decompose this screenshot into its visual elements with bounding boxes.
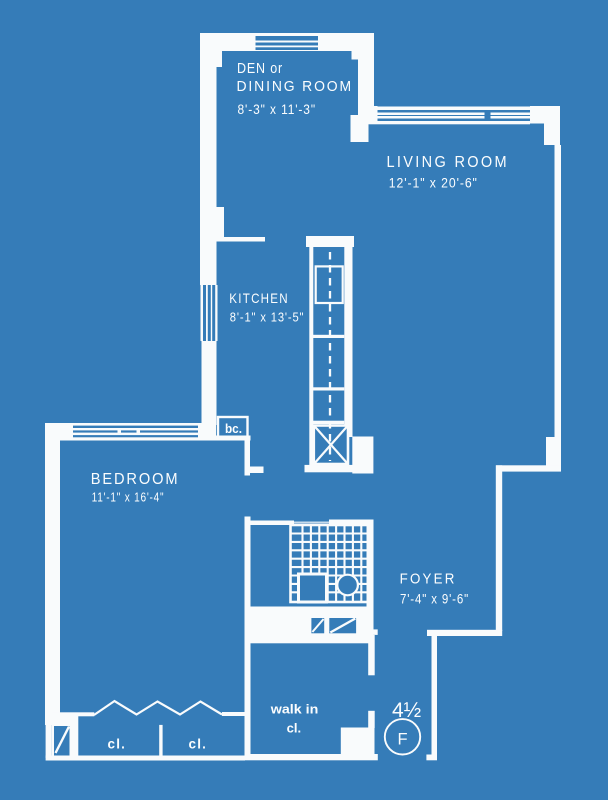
svg-text:cl.: cl. [287, 721, 302, 736]
svg-text:cl.: cl. [108, 737, 127, 752]
svg-text:FOYER: FOYER [400, 571, 457, 588]
svg-text:walk in: walk in [270, 702, 319, 717]
svg-text:8'-1" x 13'-5": 8'-1" x 13'-5" [230, 310, 305, 325]
svg-text:bc.: bc. [225, 421, 242, 436]
svg-text:8'-3" x 11'-3": 8'-3" x 11'-3" [238, 102, 317, 117]
svg-text:DINING ROOM: DINING ROOM [237, 78, 354, 95]
svg-text:DEN or: DEN or [237, 60, 283, 77]
svg-text:7'-4" x 9'-6": 7'-4" x 9'-6" [400, 592, 469, 607]
svg-text:12'-1" x 20'-6": 12'-1" x 20'-6" [389, 176, 478, 191]
svg-text:LIVING ROOM: LIVING ROOM [387, 154, 510, 171]
svg-text:4½: 4½ [392, 699, 421, 722]
svg-text:F: F [397, 731, 407, 749]
svg-text:BEDROOM: BEDROOM [91, 471, 180, 488]
svg-text:KITCHEN: KITCHEN [229, 290, 289, 306]
svg-text:11'-1" x 16'-4": 11'-1" x 16'-4" [92, 490, 165, 505]
svg-text:cl.: cl. [189, 737, 208, 752]
